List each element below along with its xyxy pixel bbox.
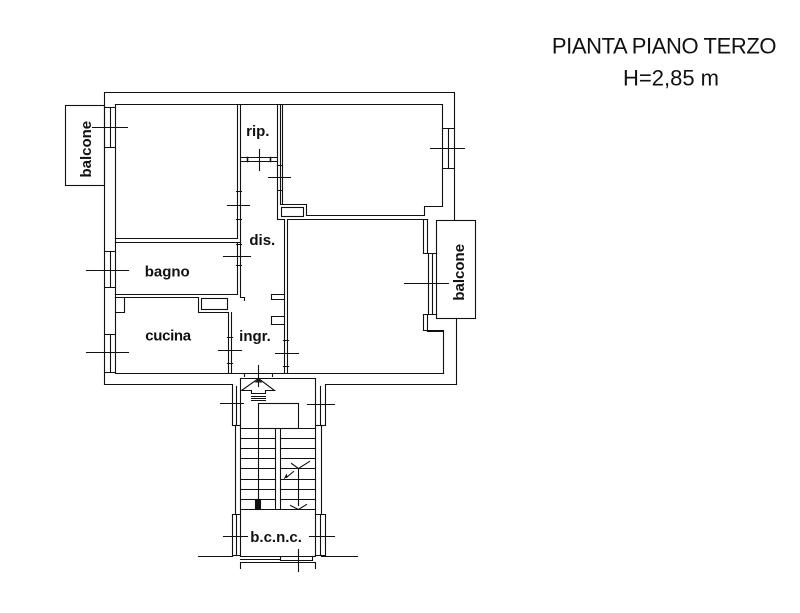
svg-text:balcone: balcone xyxy=(78,121,95,178)
svg-text:H=2,85 m: H=2,85 m xyxy=(623,66,719,91)
svg-text:dis.: dis. xyxy=(249,232,275,249)
svg-text:rip.: rip. xyxy=(246,123,269,140)
svg-text:ingr.: ingr. xyxy=(239,328,271,345)
svg-text:balcone: balcone xyxy=(451,244,468,301)
svg-text:b.c.n.c.: b.c.n.c. xyxy=(250,529,302,546)
svg-text:cucina: cucina xyxy=(145,327,191,344)
svg-text:bagno: bagno xyxy=(145,263,190,280)
svg-text:PIANTA PIANO TERZO: PIANTA PIANO TERZO xyxy=(552,34,777,59)
